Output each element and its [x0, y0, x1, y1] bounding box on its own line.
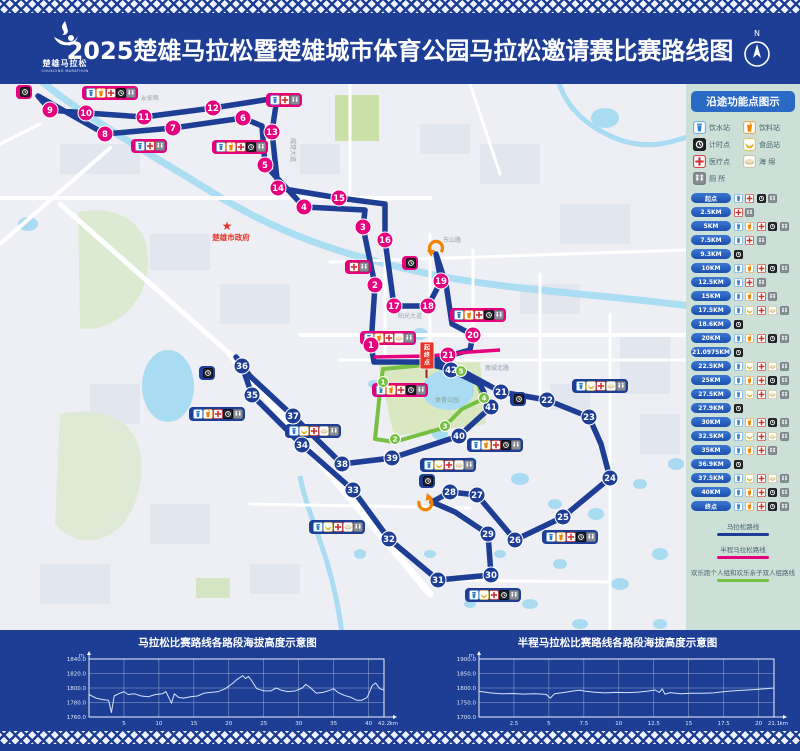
timing-icon	[768, 502, 777, 511]
food-icon	[745, 306, 754, 315]
legend-item-label: 海 绵	[759, 157, 775, 167]
km-row: 35KM	[691, 443, 796, 457]
km-marker-27: 27	[469, 487, 485, 503]
svg-text:31: 31	[432, 576, 444, 586]
svg-text:起终点: 起终点	[423, 344, 431, 367]
timing-icon	[515, 395, 524, 404]
svg-text:1760.0: 1760.0	[67, 715, 87, 721]
medical-icon	[310, 427, 319, 436]
legend-item-medical: 医疗点	[693, 153, 743, 170]
water-icon	[734, 488, 743, 497]
svg-text:18: 18	[422, 302, 434, 312]
svg-text:19: 19	[435, 277, 447, 287]
legend-item-label: 饮料站	[759, 123, 780, 133]
medical-icon	[757, 222, 766, 231]
medical-icon	[734, 208, 743, 217]
svg-text:35: 35	[246, 391, 258, 401]
water-icon	[734, 334, 743, 343]
toilet-icon	[156, 142, 165, 151]
km-label-pill: 2.5KM	[691, 207, 731, 217]
svg-text:3: 3	[443, 423, 448, 431]
drink-icon	[745, 488, 754, 497]
legend-items: 饮水站饮料站计时点食品站医疗点海 绵厕 所	[686, 119, 800, 187]
toilet-icon	[127, 89, 136, 98]
food-icon	[300, 427, 309, 436]
medical-icon	[757, 376, 766, 385]
medical-icon	[693, 155, 706, 168]
medical-icon	[757, 446, 766, 455]
water-icon	[425, 461, 434, 470]
medical-icon	[757, 432, 766, 441]
svg-text:10: 10	[80, 109, 92, 119]
svg-text:5: 5	[459, 368, 464, 376]
water-icon	[470, 591, 479, 600]
timing-icon	[21, 88, 30, 97]
km-row: 18.6KM	[691, 317, 796, 331]
svg-text:14: 14	[272, 184, 284, 194]
km-row: 25KM	[691, 373, 796, 387]
food-icon	[745, 474, 754, 483]
toilet-icon	[768, 446, 777, 455]
medical-icon	[385, 334, 394, 343]
legend-item-label: 厕 所	[709, 174, 725, 184]
sponge-icon	[395, 334, 404, 343]
svg-text:2.5: 2.5	[510, 721, 519, 727]
svg-text:20: 20	[755, 721, 762, 727]
svg-text:N: N	[754, 29, 760, 38]
svg-text:2: 2	[393, 436, 398, 444]
legend-item-label: 饮水站	[709, 123, 730, 133]
drink-icon	[745, 446, 754, 455]
toilet-icon	[234, 410, 243, 419]
svg-text:1800.0: 1800.0	[67, 686, 87, 692]
drink-icon	[745, 418, 754, 427]
svg-text:km: km	[389, 721, 398, 727]
svg-text:42.2: 42.2	[378, 721, 390, 727]
svg-text:1750.0: 1750.0	[457, 701, 477, 707]
medical-icon	[745, 194, 754, 203]
km-row: 17.5KM	[691, 303, 796, 317]
drink-icon	[204, 410, 213, 419]
chart-title: 马拉松比赛路线各路段海拔高度示意图	[55, 635, 400, 650]
km-marker-38: 38	[334, 456, 350, 472]
water-icon	[734, 376, 743, 385]
km-row: 27.5KM	[691, 387, 796, 401]
svg-text:★: ★	[222, 219, 233, 233]
svg-text:20: 20	[467, 331, 479, 341]
svg-text:21: 21	[442, 351, 454, 361]
water-icon	[734, 292, 743, 301]
station-pill	[199, 366, 215, 380]
km-marker-17: 17	[386, 298, 402, 314]
legend-item-food: 食品站	[743, 136, 793, 153]
km-label-pill: 27.5KM	[691, 389, 731, 399]
toilet-icon	[257, 143, 266, 152]
sponge-icon	[768, 306, 777, 315]
toilet-icon	[617, 382, 626, 391]
timing-icon	[768, 264, 777, 273]
svg-text:1: 1	[381, 379, 386, 387]
station-pill	[420, 458, 476, 472]
km-marker-16: 16	[377, 232, 393, 248]
svg-text:7: 7	[170, 124, 176, 134]
station-pill	[542, 530, 598, 544]
svg-text:27: 27	[471, 491, 483, 501]
water-icon	[734, 502, 743, 511]
km-label-pill: 终点	[691, 501, 731, 511]
medical-icon	[757, 362, 766, 371]
svg-text:21.1: 21.1	[768, 721, 780, 727]
station-pill	[285, 424, 341, 438]
svg-text:15: 15	[190, 721, 197, 727]
km-row: 37.5KM	[691, 471, 796, 485]
route-key-line	[717, 579, 769, 582]
timing-icon	[407, 259, 416, 268]
km-label-pill: 25KM	[691, 375, 731, 385]
station-pill	[450, 308, 506, 322]
drink-icon	[387, 386, 396, 395]
food-icon	[745, 432, 754, 441]
svg-text:40: 40	[365, 721, 372, 727]
medical-icon	[214, 410, 223, 419]
route-key-label: 马拉松路线	[688, 521, 798, 531]
sponge-icon	[607, 382, 616, 391]
chart-title: 半程马拉松比赛路线各路段海拔高度示意图	[445, 635, 790, 650]
km-marker-23: 23	[581, 409, 597, 425]
svg-text:24: 24	[604, 474, 616, 484]
svg-text:26: 26	[509, 536, 521, 546]
km-marker-15: 15	[331, 190, 347, 206]
food-icon	[745, 362, 754, 371]
km-label-pill: 36.9KM	[691, 459, 731, 469]
water-icon	[734, 306, 743, 315]
km-label-pill: 12.5KM	[691, 277, 731, 287]
km-marker-20: 20	[465, 327, 481, 343]
water-icon	[271, 96, 280, 105]
km-marker-4: 4	[296, 199, 312, 215]
water-icon	[734, 222, 743, 231]
timing-icon	[734, 348, 743, 357]
svg-text:3: 3	[360, 223, 366, 233]
km-marker-8: 8	[97, 126, 113, 142]
svg-text:9: 9	[47, 106, 53, 116]
km-marker-26: 26	[507, 532, 523, 548]
timing-icon	[577, 533, 586, 542]
legend-item-label: 计时点	[709, 140, 730, 150]
km-marker-21: 21	[493, 384, 509, 400]
fun-km-marker-1: 1	[378, 377, 389, 388]
km-marker-6: 6	[235, 110, 251, 126]
drink-icon	[482, 441, 491, 450]
km-label-pill: 7.5KM	[691, 235, 731, 245]
fun-km-marker-3: 3	[440, 421, 451, 432]
water-icon	[734, 390, 743, 399]
svg-text:23: 23	[583, 413, 595, 423]
toilet-icon	[745, 208, 754, 217]
svg-text:30: 30	[485, 571, 497, 581]
km-row: 21.0975KM	[691, 345, 796, 359]
svg-text:41: 41	[485, 403, 497, 413]
medical-icon	[597, 382, 606, 391]
station-pill	[402, 256, 418, 270]
km-label-pill: 22.5KM	[691, 361, 731, 371]
km-label-pill: 10KM	[691, 263, 731, 273]
svg-text:40: 40	[453, 432, 465, 442]
sponge-icon	[320, 427, 329, 436]
km-station-list: 起点2.5KM5KM7.5KM9.3KM10KM12.5KM15KM17.5KM…	[686, 187, 800, 513]
station-pill	[212, 140, 268, 154]
food-icon	[587, 382, 596, 391]
svg-text:25: 25	[557, 513, 569, 523]
svg-text:1850.0: 1850.0	[457, 672, 477, 678]
toilet-icon	[291, 96, 300, 105]
route-key: 欢乐跑个人组和欢乐亲子双人组路线	[688, 567, 798, 582]
km-marker-1: 1	[363, 337, 379, 353]
medical-icon	[567, 533, 576, 542]
km-marker-33: 33	[345, 482, 361, 498]
medical-icon	[490, 591, 499, 600]
toilet-icon	[780, 390, 789, 399]
route-key-line	[717, 533, 769, 536]
page-title: 2025楚雄马拉松暨楚雄城市体育公园马拉松邀请赛比赛路线图	[95, 13, 705, 84]
km-marker-28: 28	[442, 484, 458, 500]
water-icon	[136, 142, 145, 151]
medical-icon	[397, 386, 406, 395]
toilet-icon	[465, 461, 474, 470]
km-label-pill: 40KM	[691, 487, 731, 497]
svg-text:30: 30	[295, 721, 302, 727]
medical-icon	[445, 461, 454, 470]
station-pill	[467, 438, 523, 452]
toilet-icon	[757, 236, 766, 245]
road-label: 永安路	[141, 93, 160, 102]
toilet-icon	[757, 278, 766, 287]
medical-icon	[757, 264, 766, 273]
timing-icon	[768, 488, 777, 497]
timing-icon	[247, 143, 256, 152]
decor-border-top	[0, 0, 800, 13]
timing-icon	[485, 311, 494, 320]
timing-icon	[502, 441, 511, 450]
km-marker-14: 14	[270, 180, 286, 196]
route-key-line	[717, 556, 769, 559]
km-marker-11: 11	[136, 109, 152, 125]
svg-text:m: m	[79, 653, 84, 659]
half-marathon-elevation-chart: 半程马拉松比赛路线各路段海拔高度示意图 1700.01750.01800.018…	[445, 635, 790, 742]
toilet-icon	[780, 306, 789, 315]
route-key: 半程马拉松路线	[688, 544, 798, 559]
svg-text:20: 20	[225, 721, 232, 727]
km-row: 终点	[691, 499, 796, 513]
km-marker-10: 10	[78, 105, 94, 121]
water-icon	[87, 89, 96, 98]
km-marker-18: 18	[420, 298, 436, 314]
svg-text:10: 10	[155, 721, 162, 727]
km-row: 5KM	[691, 219, 796, 233]
toilet-icon	[495, 311, 504, 320]
food-icon	[745, 390, 754, 399]
svg-text:2: 2	[372, 281, 378, 291]
route-key-label: 欢乐跑个人组和欢乐亲子双人组路线	[688, 567, 798, 577]
water-icon	[217, 143, 226, 152]
route-map: 1234567891011121314151617181920212122232…	[0, 84, 686, 630]
medical-icon	[107, 89, 116, 98]
km-label-pill: 30KM	[691, 417, 731, 427]
svg-text:7.5: 7.5	[579, 721, 588, 727]
km-label-pill: 18.6KM	[691, 319, 731, 329]
km-label-pill: 27.9KM	[691, 403, 731, 413]
svg-text:8: 8	[102, 130, 108, 140]
legend-title: 沿途功能点图示	[691, 91, 795, 112]
legend-item-timing: 计时点	[693, 136, 743, 153]
station-pill	[266, 93, 302, 107]
water-icon	[734, 278, 743, 287]
station-pill	[309, 520, 365, 534]
toilet-icon	[780, 418, 789, 427]
svg-text:22: 22	[541, 396, 553, 406]
toilet-icon	[405, 334, 414, 343]
water-icon	[734, 474, 743, 483]
route-key-label: 半程马拉松路线	[688, 544, 798, 554]
km-marker-7: 7	[165, 120, 181, 136]
timing-icon	[734, 320, 743, 329]
km-row: 32.5KM	[691, 429, 796, 443]
svg-text:1700.0: 1700.0	[457, 715, 477, 721]
km-row: 20KM	[691, 331, 796, 345]
water-icon	[314, 523, 323, 532]
km-label-pill: 起点	[691, 193, 731, 203]
medical-icon	[745, 278, 754, 287]
toilet-icon	[768, 194, 777, 203]
toilet-icon	[768, 292, 777, 301]
svg-text:1800.0: 1800.0	[457, 686, 477, 692]
legend-item-sponge: 海 绵	[743, 153, 793, 170]
food-icon	[324, 523, 333, 532]
legend-item-label: 医疗点	[709, 157, 730, 167]
km-row: 36.9KM	[691, 457, 796, 471]
legend-item-label: 食品站	[759, 140, 780, 150]
km-label-pill: 37.5KM	[691, 473, 731, 483]
sponge-icon	[768, 362, 777, 371]
road-label: 鹿城北路	[485, 364, 509, 372]
marathon-elevation-chart: 马拉松比赛路线各路段海拔高度示意图 1760.01780.01800.01820…	[55, 635, 400, 742]
water-icon	[734, 432, 743, 441]
sponge-icon	[768, 390, 777, 399]
medical-icon	[350, 263, 359, 272]
km-row: 起点	[691, 191, 796, 205]
km-marker-24: 24	[602, 470, 618, 486]
station-pill	[345, 260, 371, 274]
water-icon	[194, 410, 203, 419]
svg-text:29: 29	[482, 530, 494, 540]
drink-icon	[465, 311, 474, 320]
km-marker-12: 12	[205, 100, 221, 116]
km-row: 12.5KM	[691, 275, 796, 289]
timing-icon	[768, 222, 777, 231]
km-row: 40KM	[691, 485, 796, 499]
drink-icon	[97, 89, 106, 98]
km-row: 30KM	[691, 415, 796, 429]
timing-icon	[693, 138, 706, 151]
km-label-pill: 20KM	[691, 333, 731, 343]
timing-icon	[734, 460, 743, 469]
road-label: 东山路	[443, 236, 461, 244]
svg-text:38: 38	[336, 460, 348, 470]
toilet-icon	[780, 432, 789, 441]
km-marker-34: 34	[294, 437, 310, 453]
station-pill	[131, 139, 167, 153]
toilet-icon	[330, 427, 339, 436]
svg-text:32: 32	[383, 535, 395, 545]
water-icon	[290, 427, 299, 436]
timing-icon	[407, 386, 416, 395]
station-pill	[82, 86, 138, 100]
medical-icon	[492, 441, 501, 450]
toilet-icon	[510, 591, 519, 600]
svg-text:37: 37	[287, 412, 299, 422]
km-marker-36: 36	[234, 358, 250, 374]
header: 楚雄马拉松 CHUXIONG MARATHON 2025楚雄马拉松暨楚雄城市体育…	[0, 13, 800, 84]
svg-text:1: 1	[368, 341, 374, 351]
drink-icon	[745, 334, 754, 343]
medical-icon	[146, 142, 155, 151]
svg-text:5: 5	[262, 161, 268, 171]
km-label-pill: 5KM	[691, 221, 731, 231]
drink-icon	[745, 264, 754, 273]
toilet-icon	[780, 334, 789, 343]
station-pill	[16, 85, 32, 99]
km-row: 7.5KM	[691, 233, 796, 247]
medical-icon	[237, 143, 246, 152]
sponge-icon	[768, 432, 777, 441]
timing-icon	[768, 334, 777, 343]
medical-icon	[757, 418, 766, 427]
toilet-icon	[780, 264, 789, 273]
km-row: 2.5KM	[691, 205, 796, 219]
drink-icon	[745, 222, 754, 231]
water-icon	[472, 441, 481, 450]
toilet-icon	[360, 263, 369, 272]
km-label-pill: 9.3KM	[691, 249, 731, 259]
svg-text:km: km	[779, 721, 788, 727]
water-icon	[455, 311, 464, 320]
svg-text:17.5: 17.5	[718, 721, 731, 727]
medical-icon	[757, 488, 766, 497]
compass-icon: N	[742, 27, 772, 75]
road-label: 威楚大道	[289, 138, 297, 162]
station-pill	[510, 392, 526, 406]
km-row: 15KM	[691, 289, 796, 303]
toilet-icon	[780, 222, 789, 231]
decor-border-bottom	[0, 731, 800, 744]
medical-icon	[757, 334, 766, 343]
toilet-icon	[587, 533, 596, 542]
svg-text:12.5: 12.5	[648, 721, 661, 727]
svg-text:33: 33	[347, 486, 359, 496]
timing-icon	[768, 418, 777, 427]
road-label: 阳光大道	[398, 312, 422, 320]
km-marker-19: 19	[433, 273, 449, 289]
svg-text:4: 4	[301, 203, 307, 213]
timing-icon	[224, 410, 233, 419]
medical-icon	[757, 306, 766, 315]
government-label: 楚雄市政府	[212, 232, 250, 242]
fun-km-marker-4: 4	[479, 393, 490, 404]
medical-icon	[757, 292, 766, 301]
toilet-icon	[512, 441, 521, 450]
food-icon	[743, 138, 756, 151]
svg-text:15: 15	[685, 721, 692, 727]
